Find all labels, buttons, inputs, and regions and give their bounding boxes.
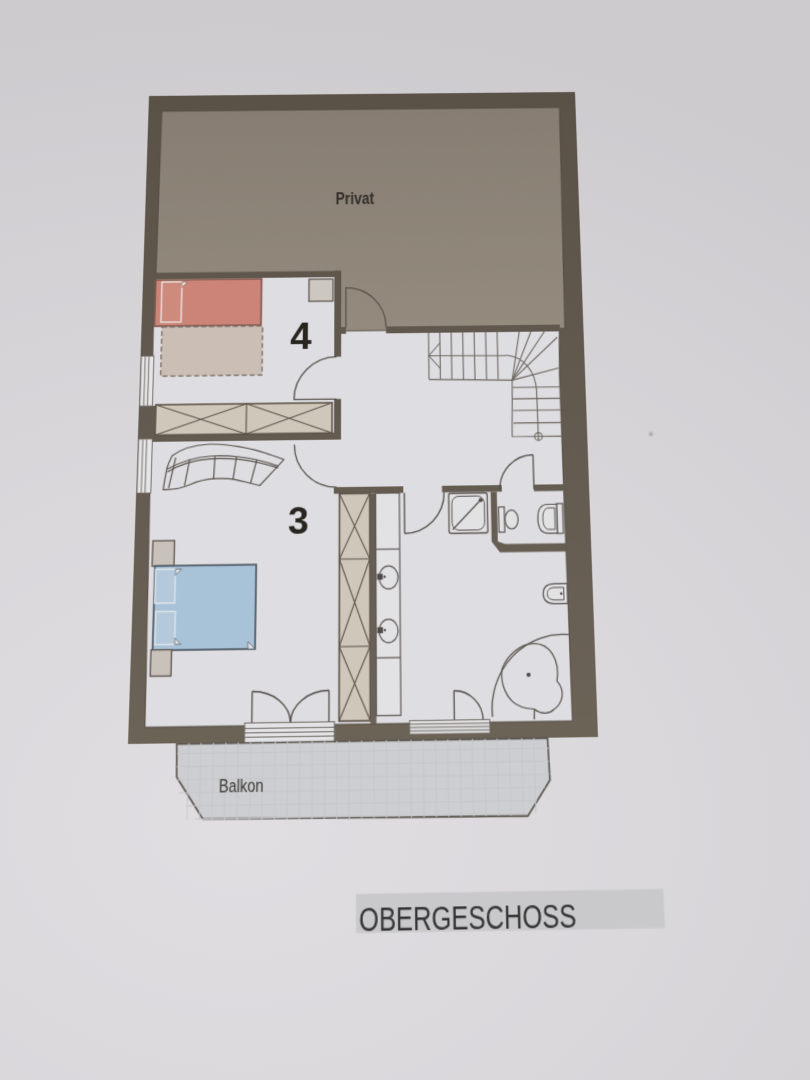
svg-text:3: 3 — [288, 500, 309, 543]
svg-text:4: 4 — [290, 314, 312, 358]
svg-text:Privat: Privat — [336, 188, 375, 209]
svg-text:OBERGESCHOSS: OBERGESCHOSS — [359, 897, 577, 939]
svg-text:Balkon: Balkon — [219, 776, 264, 797]
